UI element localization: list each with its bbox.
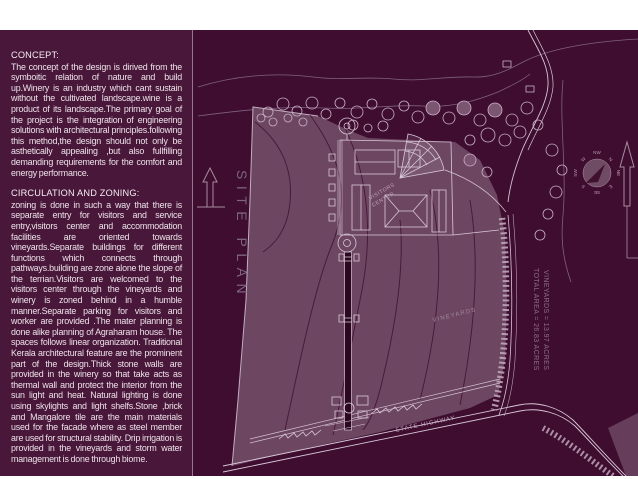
site-plan-area: NW N NE E SE S SW W SITE PLAN TOTAL AREA… (193, 30, 638, 476)
circulation-zoning-paragraph: zoning is done in such a way that there … (11, 200, 182, 465)
concept-paragraph: The concept of the design is dirived fro… (11, 62, 182, 179)
compass-label: NE (616, 170, 621, 176)
concept-heading: CONCEPT: (11, 50, 182, 61)
total-area-note: TOTAL AREA = 26.83 ACRES (532, 268, 539, 371)
text-panel: CONCEPT: The concept of the design is di… (0, 30, 193, 476)
slide-canvas: CONCEPT: The concept of the design is di… (0, 30, 638, 476)
slide-page: CONCEPT: The concept of the design is di… (0, 0, 638, 479)
circulation-zoning-heading: CIRCULATION AND ZONING: (11, 188, 182, 199)
compass-label: NW (593, 150, 601, 155)
site-plan-drawing: NW N NE E SE S SW W SITE PLAN TOTAL AREA… (193, 30, 638, 476)
compass-label: SW (573, 169, 578, 177)
compass-label: SE (594, 190, 600, 195)
site-plan-title: SITE PLAN (234, 170, 250, 300)
vineyards-area-note: VINEYARDS = 13.97 ACRES (542, 270, 549, 370)
